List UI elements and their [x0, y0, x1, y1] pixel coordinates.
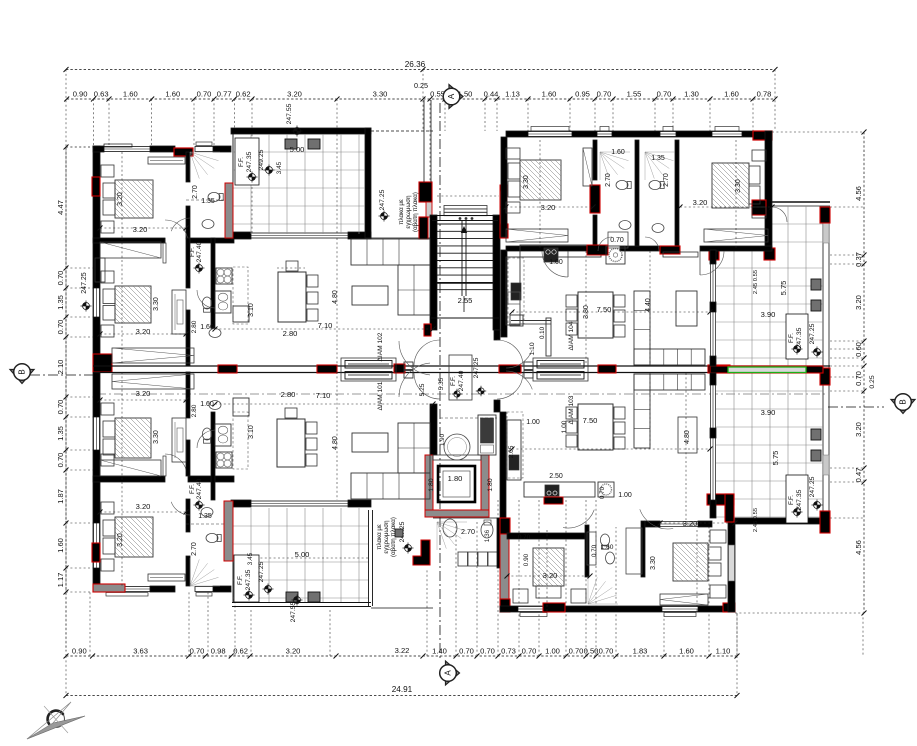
svg-text:2.55: 2.55: [458, 296, 473, 305]
svg-text:1.00: 1.00: [618, 492, 632, 499]
svg-text:1.36: 1.36: [484, 529, 491, 542]
svg-text:247.40: 247.40: [196, 478, 203, 499]
svg-text:2.80: 2.80: [283, 329, 298, 338]
svg-text:4.56: 4.56: [854, 186, 863, 201]
svg-text:3.45: 3.45: [276, 161, 283, 174]
svg-text:0.62: 0.62: [236, 90, 251, 99]
svg-text:5.75: 5.75: [779, 281, 788, 296]
svg-text:0.70: 0.70: [599, 486, 606, 499]
svg-text:A: A: [444, 670, 453, 676]
svg-text:2.10: 2.10: [56, 360, 65, 375]
svg-text:1.40: 1.40: [432, 647, 447, 656]
svg-text:0.70: 0.70: [610, 237, 624, 244]
svg-text:πλακα με: πλακα με: [398, 199, 405, 225]
svg-text:3.30: 3.30: [650, 556, 657, 570]
svg-text:εγχρωμωση: εγχρωμωση: [383, 520, 390, 554]
svg-text:0.10: 0.10: [539, 326, 546, 339]
svg-text:0.70: 0.70: [190, 647, 205, 656]
svg-text:247.40: 247.40: [196, 241, 203, 262]
svg-text:5.35: 5.35: [438, 377, 445, 390]
svg-text:0.70: 0.70: [569, 647, 584, 656]
svg-text:2.45 0.55: 2.45 0.55: [753, 508, 759, 532]
svg-text:1.60: 1.60: [679, 647, 694, 656]
svg-text:0.60: 0.60: [854, 342, 863, 357]
svg-text:0.70: 0.70: [591, 544, 598, 557]
svg-text:4.56: 4.56: [854, 540, 863, 555]
svg-text:3.30: 3.30: [153, 297, 160, 311]
svg-text:0.70: 0.70: [599, 647, 614, 656]
svg-text:247.35: 247.35: [245, 569, 252, 590]
svg-text:247.55: 247.55: [290, 601, 297, 622]
svg-text:1.17: 1.17: [56, 573, 65, 588]
svg-text:247.25: 247.25: [379, 189, 386, 210]
svg-text:3.20: 3.20: [286, 647, 301, 656]
svg-text:0.98: 0.98: [211, 647, 226, 656]
svg-text:0.70: 0.70: [56, 453, 65, 468]
svg-text:3.20: 3.20: [854, 295, 863, 310]
svg-text:3.20: 3.20: [117, 533, 124, 547]
svg-text:2.70: 2.70: [192, 185, 199, 199]
svg-text:2.50: 2.50: [549, 473, 563, 480]
svg-text:F.F.: F.F.: [237, 575, 244, 585]
svg-text:1.80: 1.80: [448, 474, 463, 483]
svg-text:3.20: 3.20: [117, 192, 124, 206]
svg-text:1.10: 1.10: [529, 342, 536, 355]
svg-text:4.40: 4.40: [645, 298, 652, 312]
svg-text:1.80: 1.80: [428, 478, 435, 491]
svg-text:247.55: 247.55: [286, 103, 293, 124]
svg-text:A: A: [447, 93, 456, 99]
svg-text:1.60: 1.60: [724, 90, 739, 99]
svg-text:3.30: 3.30: [523, 175, 530, 189]
svg-text:1.00: 1.00: [545, 647, 560, 656]
svg-text:3.20: 3.20: [133, 225, 148, 234]
svg-text:1.60: 1.60: [123, 90, 138, 99]
svg-text:0.90: 0.90: [72, 647, 87, 656]
svg-text:3.20: 3.20: [136, 389, 151, 398]
svg-text:5.00: 5.00: [290, 145, 305, 154]
svg-text:0.62: 0.62: [233, 647, 248, 656]
svg-text:1.00: 1.00: [561, 420, 568, 433]
svg-text:0.25: 0.25: [869, 375, 876, 388]
svg-text:1.00: 1.00: [549, 259, 563, 266]
svg-text:2.70: 2.70: [461, 527, 475, 536]
svg-text:B: B: [18, 369, 27, 374]
svg-text:247.25: 247.25: [473, 357, 480, 378]
svg-text:247.40: 247.40: [458, 370, 465, 391]
svg-text:0.73: 0.73: [501, 647, 516, 656]
svg-text:ΔΙΑΜ 102: ΔΙΑΜ 102: [377, 332, 384, 361]
svg-text:0.70: 0.70: [854, 371, 863, 386]
svg-text:3.20: 3.20: [693, 198, 708, 207]
svg-text:5.75: 5.75: [771, 451, 780, 466]
svg-text:3.10: 3.10: [248, 303, 255, 317]
svg-text:3.20: 3.20: [543, 571, 558, 580]
svg-text:1.60: 1.60: [200, 401, 214, 408]
svg-text:0.47: 0.47: [854, 468, 863, 483]
svg-text:(αβατη πλακα): (αβατη πλακα): [412, 192, 419, 232]
svg-text:7.10: 7.10: [316, 391, 331, 400]
svg-text:247.25: 247.25: [809, 476, 816, 497]
svg-text:0.70: 0.70: [480, 647, 495, 656]
svg-text:1.60: 1.60: [165, 90, 180, 99]
svg-text:3.22: 3.22: [395, 646, 410, 655]
svg-text:0.77: 0.77: [217, 90, 232, 99]
svg-text:F.F.: F.F.: [189, 484, 196, 494]
svg-text:1.83: 1.83: [633, 647, 648, 656]
svg-text:1.60: 1.60: [601, 544, 614, 551]
svg-text:4.80: 4.80: [332, 290, 339, 304]
svg-text:1.35: 1.35: [56, 295, 65, 310]
svg-text:1.13: 1.13: [505, 90, 520, 99]
svg-text:2.80: 2.80: [281, 390, 296, 399]
svg-text:0.44: 0.44: [484, 90, 499, 99]
svg-text:2.70: 2.70: [191, 542, 198, 556]
svg-text:4.47: 4.47: [56, 200, 65, 215]
svg-text:3.20: 3.20: [683, 519, 698, 528]
svg-text:ΔΙΑΜ 104: ΔΙΑΜ 104: [568, 321, 575, 350]
svg-text:247.35: 247.35: [246, 151, 253, 172]
svg-text:F.F.: F.F.: [238, 157, 245, 167]
svg-text:ΔΙΑΜ 101: ΔΙΑΜ 101: [377, 381, 384, 410]
svg-text:3.20: 3.20: [136, 502, 151, 511]
svg-text:249.25: 249.25: [258, 149, 265, 170]
svg-text:3.45: 3.45: [247, 552, 254, 565]
svg-text:2.45 0.55: 2.45 0.55: [753, 270, 759, 294]
svg-text:247.25: 247.25: [809, 323, 816, 344]
svg-text:εγχρωμωση: εγχρωμωση: [405, 195, 412, 229]
svg-text:0.70: 0.70: [522, 647, 537, 656]
svg-text:4.80: 4.80: [684, 430, 691, 444]
svg-text:F.F.: F.F.: [788, 495, 795, 505]
svg-text:0.37: 0.37: [854, 252, 863, 267]
svg-text:2.70: 2.70: [605, 173, 612, 187]
svg-text:24.91: 24.91: [392, 685, 413, 694]
svg-text:2.80: 2.80: [191, 404, 198, 417]
svg-text:0.70: 0.70: [597, 90, 612, 99]
svg-text:0.95: 0.95: [575, 90, 590, 99]
svg-text:B: B: [899, 399, 908, 404]
svg-text:26.36: 26.36: [405, 60, 426, 69]
svg-text:0.70: 0.70: [518, 534, 531, 541]
svg-text:3.30: 3.30: [153, 430, 160, 444]
svg-text:3.20: 3.20: [287, 90, 302, 99]
svg-text:3.63: 3.63: [133, 647, 148, 656]
svg-text:0.70: 0.70: [56, 271, 65, 286]
svg-text:7.50: 7.50: [597, 305, 612, 314]
svg-text:1.60: 1.60: [56, 538, 65, 553]
svg-text:0.70: 0.70: [56, 400, 65, 415]
svg-text:F.F.: F.F.: [189, 247, 196, 257]
svg-text:3.30: 3.30: [373, 90, 388, 99]
svg-text:2.80: 2.80: [191, 320, 198, 333]
svg-text:F.F.: F.F.: [788, 333, 795, 343]
svg-text:247.25: 247.25: [258, 561, 265, 582]
svg-text:7.10: 7.10: [318, 321, 333, 330]
svg-text:0.70: 0.70: [56, 320, 65, 335]
svg-text:1.00: 1.00: [526, 419, 540, 426]
svg-text:0.70: 0.70: [197, 90, 212, 99]
svg-text:3.90: 3.90: [761, 310, 776, 319]
svg-text:7.50: 7.50: [583, 416, 598, 425]
svg-text:5.00: 5.00: [295, 550, 310, 559]
svg-text:1.55: 1.55: [627, 90, 642, 99]
svg-text:0.90: 0.90: [73, 90, 88, 99]
svg-text:3.20: 3.20: [541, 203, 556, 212]
svg-text:0.25: 0.25: [414, 81, 428, 90]
svg-text:0.63: 0.63: [94, 90, 109, 99]
svg-text:3.20: 3.20: [136, 327, 151, 336]
svg-text:5.25: 5.25: [419, 383, 426, 396]
svg-text:1.60: 1.60: [200, 324, 214, 331]
svg-text:1.60: 1.60: [542, 90, 557, 99]
svg-text:F.F.: F.F.: [450, 376, 457, 386]
svg-text:1.90: 1.90: [439, 433, 446, 446]
svg-text:0.90: 0.90: [523, 553, 530, 566]
svg-text:1.10: 1.10: [716, 647, 731, 656]
svg-text:1.60: 1.60: [611, 149, 625, 156]
svg-text:1.30: 1.30: [684, 90, 699, 99]
svg-text:3.20: 3.20: [854, 422, 863, 437]
svg-text:3.90: 3.90: [761, 408, 776, 417]
svg-text:4.80: 4.80: [332, 436, 339, 450]
svg-text:1.80: 1.80: [487, 478, 494, 491]
svg-text:1.87: 1.87: [56, 489, 65, 504]
svg-text:1.35: 1.35: [56, 426, 65, 441]
svg-text:0.70: 0.70: [459, 647, 474, 656]
svg-text:3.10: 3.10: [248, 425, 255, 439]
svg-text:ΔΙΑΜ 103: ΔΙΑΜ 103: [568, 395, 575, 424]
svg-text:πλακα με: πλακα με: [376, 524, 383, 550]
svg-text:0.78: 0.78: [757, 90, 772, 99]
svg-text:1.35: 1.35: [651, 155, 665, 162]
svg-text:247.25: 247.25: [81, 272, 88, 294]
svg-text:0.70: 0.70: [657, 90, 672, 99]
